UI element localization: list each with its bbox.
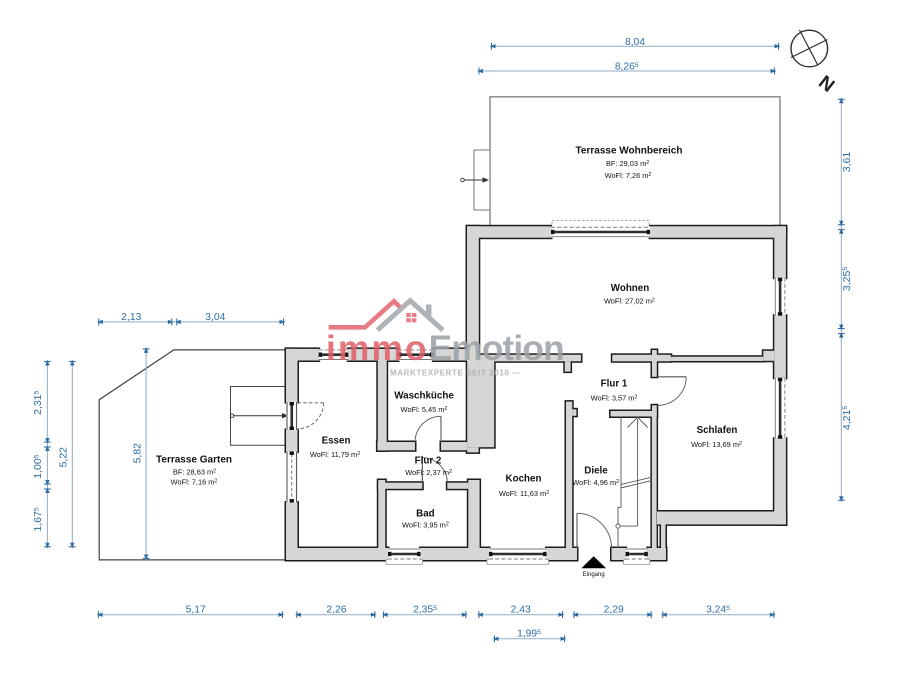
svg-text:WoFl: 13,69 m2: WoFl: 13,69 m2 (691, 440, 742, 449)
svg-text:Diele: Diele (584, 466, 608, 477)
svg-text:WoFl: 2,37 m2: WoFl: 2,37 m2 (405, 468, 452, 477)
svg-text:WoFl: 3,57 m2: WoFl: 3,57 m2 (591, 394, 638, 403)
svg-text:WoFl: 11,79 m2: WoFl: 11,79 m2 (310, 450, 360, 459)
svg-text:Flur 2: Flur 2 (415, 456, 442, 467)
svg-text:3,04: 3,04 (205, 312, 225, 323)
svg-text:3,61: 3,61 (841, 152, 853, 173)
svg-text:WoFl: 7,16 m2: WoFl: 7,16 m2 (171, 478, 218, 487)
svg-text:Bad: Bad (416, 509, 435, 520)
svg-text:MARKTEXPERTE SEIT 2010 —: MARKTEXPERTE SEIT 2010 — (390, 369, 521, 378)
svg-text:BF: 28,63 m2: BF: 28,63 m2 (173, 468, 216, 477)
svg-text:5,82: 5,82 (131, 443, 143, 464)
svg-text:Waschküche: Waschküche (394, 391, 454, 402)
svg-text:immoEmotion: immoEmotion (326, 329, 564, 368)
svg-text:2,43: 2,43 (511, 605, 531, 616)
svg-text:Wohnen: Wohnen (611, 283, 649, 294)
svg-text:Terrasse Wohnbereich: Terrasse Wohnbereich (576, 146, 683, 157)
svg-text:8,04: 8,04 (625, 37, 645, 48)
svg-text:Terrasse Garten: Terrasse Garten (156, 455, 232, 466)
svg-text:Kochen: Kochen (506, 474, 542, 485)
svg-text:Flur 1: Flur 1 (601, 379, 628, 390)
svg-text:2,29: 2,29 (604, 605, 624, 616)
svg-text:WoFl: 5,45 m2: WoFl: 5,45 m2 (401, 405, 448, 414)
svg-text:WoFl: 7,26 m2: WoFl: 7,26 m2 (605, 171, 652, 180)
svg-text:2,13: 2,13 (121, 312, 141, 323)
svg-text:WoFl: 3,95 m2: WoFl: 3,95 m2 (402, 521, 449, 530)
svg-text:Eingang: Eingang (583, 572, 605, 578)
svg-text:Essen: Essen (322, 436, 351, 447)
svg-text:WoFl: 4,96 m2: WoFl: 4,96 m2 (572, 478, 619, 487)
svg-text:2,26: 2,26 (326, 605, 346, 616)
svg-text:5,22: 5,22 (58, 447, 70, 468)
svg-text:WoFl: 11,63 m2: WoFl: 11,63 m2 (499, 489, 549, 498)
svg-text:WoFl: 27,02 m2: WoFl: 27,02 m2 (604, 297, 655, 306)
svg-text:BF: 29,03 m2: BF: 29,03 m2 (606, 159, 649, 168)
svg-text:5,17: 5,17 (186, 605, 206, 616)
svg-text:Schlafen: Schlafen (697, 425, 738, 436)
